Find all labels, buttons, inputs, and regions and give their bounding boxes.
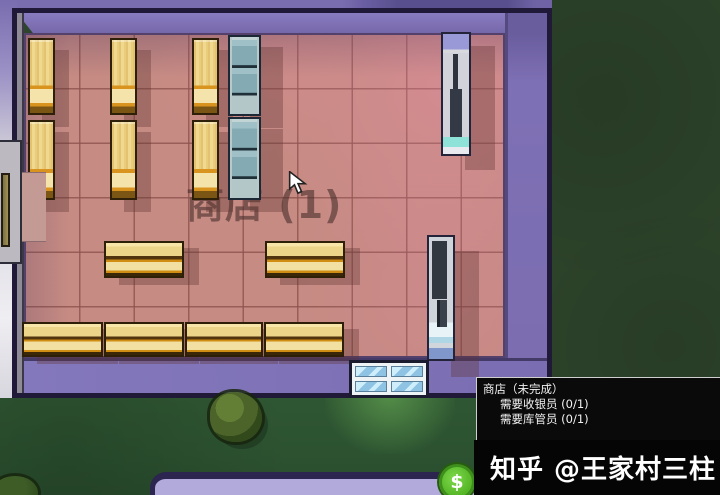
game-viewport: 商店 (1) $ 商店（未完成） 需要收银员 (0/1) 需要库管员 (0/1)… bbox=[0, 0, 720, 495]
shelf-v[interactable] bbox=[28, 38, 55, 115]
door-glass-pane bbox=[391, 381, 423, 392]
fridge[interactable] bbox=[228, 35, 261, 116]
cursor-icon bbox=[288, 171, 310, 195]
shelf-h[interactable] bbox=[264, 322, 344, 357]
fridge[interactable] bbox=[228, 117, 261, 200]
vending-bottom[interactable] bbox=[427, 235, 455, 361]
shelf-h[interactable] bbox=[22, 322, 103, 357]
side-door-leaf[interactable] bbox=[1, 173, 10, 247]
shelf-v[interactable] bbox=[192, 38, 219, 115]
tooltip-title: 商店（未完成） bbox=[483, 382, 714, 397]
watermark-bar: 知乎 @王家村三柱 bbox=[474, 440, 720, 495]
door-glass-pane bbox=[355, 381, 387, 392]
dollar-symbol: $ bbox=[450, 471, 463, 493]
money-icon[interactable]: $ bbox=[439, 464, 475, 495]
vending-top[interactable] bbox=[441, 32, 471, 156]
shelf-h[interactable] bbox=[265, 241, 345, 278]
neighbor-building-roof bbox=[150, 472, 476, 495]
shelf-v[interactable] bbox=[110, 120, 137, 200]
side-doorway-opening[interactable] bbox=[22, 172, 46, 242]
door-glass-pane bbox=[355, 366, 387, 377]
sliding-glass-door[interactable] bbox=[349, 360, 429, 398]
shelf-h[interactable] bbox=[104, 322, 184, 357]
watermark-text: 知乎 @王家村三柱 bbox=[490, 449, 716, 486]
shelf-v[interactable] bbox=[110, 38, 137, 115]
shelf-h[interactable] bbox=[185, 322, 263, 357]
tooltip-requirement-stocker: 需要库管员 (0/1) bbox=[483, 412, 714, 427]
shelf-h[interactable] bbox=[104, 241, 184, 278]
building-tooltip: 商店（未完成） 需要收银员 (0/1) 需要库管员 (0/1) bbox=[476, 377, 720, 440]
tooltip-requirement-cashier: 需要收银员 (0/1) bbox=[483, 397, 714, 412]
door-glass-pane bbox=[391, 366, 423, 377]
shelf-v[interactable] bbox=[192, 120, 219, 200]
bush bbox=[210, 392, 262, 442]
